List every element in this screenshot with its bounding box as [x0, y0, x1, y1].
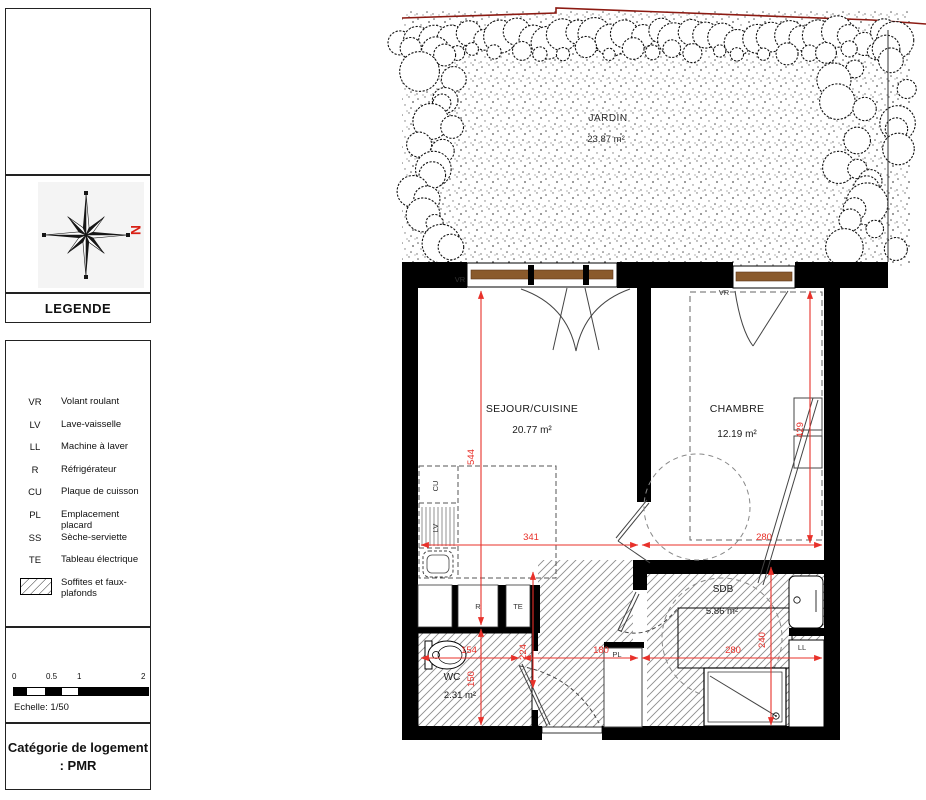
legend-abbr: SS: [18, 533, 52, 544]
legend-abbr: PL: [18, 510, 52, 521]
legend-label: Machine à laver: [61, 442, 128, 453]
legend-label: Plaque de cuisson: [61, 487, 139, 498]
wall-wc-door-stub-bottom: [532, 710, 538, 727]
chambre-label: CHAMBRE: [710, 403, 765, 415]
scale-tick-05: 0.5: [46, 672, 57, 681]
legend-row-lv: LVLave-vaisselle: [6, 420, 150, 443]
scale-caption: Echelle: 1/50: [14, 702, 69, 713]
wall-partition: [637, 284, 651, 502]
window-right-frame: [736, 272, 792, 281]
wc-label: WC: [444, 672, 461, 683]
legend-title-cell: LEGENDE: [5, 293, 151, 323]
scale-seg: [45, 688, 62, 695]
bedroom-door: [616, 500, 650, 563]
legend-row-vr: VRVolant roulant: [6, 397, 150, 420]
legend-abbr: VR: [18, 397, 52, 408]
pmr-circle-chambre: [644, 454, 750, 560]
placard-box: [604, 648, 642, 727]
scale-tick-0: 0: [12, 672, 16, 681]
wall-sdb-nook: [789, 628, 824, 636]
legend-items-cell: VRVolant roulantLVLave-vaisselleLLMachin…: [5, 340, 151, 627]
legend-title: LEGENDE: [45, 301, 111, 316]
category-cell: Catégorie de logement : PMR: [5, 723, 151, 790]
wall-sdb-top: [647, 560, 824, 574]
legend-row-hatch: Soffites et faux-plafonds: [6, 578, 150, 601]
dim-154: 154: [461, 645, 477, 656]
wall-stub-1: [452, 585, 458, 633]
tag-te: TE: [513, 602, 523, 611]
tag-pl: PL: [612, 650, 621, 659]
legend-row-ll: LLMachine à laver: [6, 442, 150, 465]
scale-seg: [62, 688, 78, 695]
wall-stub-3: [530, 585, 540, 633]
legend-label: Réfrigérateur: [61, 465, 116, 476]
dim-180: 180: [593, 645, 609, 656]
french-door-leaves: [553, 288, 599, 350]
garden-area: JARDIN 23.87 m²: [388, 8, 926, 266]
garden-label: JARDIN: [588, 113, 627, 124]
legend-abbr: TE: [18, 555, 52, 566]
tag-vr-left: VR: [455, 275, 466, 284]
category-line1: Catégorie de logement: [8, 739, 148, 757]
garden-area-label: 23.87 m²: [587, 134, 625, 145]
compass-north-letter: N: [128, 225, 144, 235]
wall-stub-2: [498, 585, 506, 633]
scale-tick-1: 1: [77, 672, 81, 681]
legend-abbr: CU: [18, 487, 52, 498]
floorplan-page: JARDIN 23.87 m²: [0, 0, 926, 800]
hatch-symbol: [20, 578, 52, 595]
wall-left: [402, 262, 418, 740]
legend-row-te: TETableau électrique: [6, 555, 150, 578]
scale-bar: [13, 687, 149, 696]
appliance-box: [418, 585, 452, 627]
wardrobe-2: [794, 436, 822, 468]
tag-vr-right: VR: [719, 288, 730, 297]
legend-abbr: R: [18, 465, 52, 476]
tag-lv: LV: [431, 524, 440, 533]
compass-rose: N: [36, 180, 146, 295]
tag-cu: CU: [431, 481, 440, 492]
wc-area: 2.31 m²: [444, 690, 476, 701]
shower-drain-dot: [775, 715, 777, 717]
legend-label: Lave-vaisselle: [61, 420, 121, 431]
legend-row-ss: SSSèche-serviette: [6, 533, 150, 556]
wall-bottom-right: [602, 726, 840, 740]
panel-compass-cell: N: [5, 175, 151, 293]
tag-ll: LL: [798, 643, 806, 652]
wall-bottom-left: [402, 726, 542, 740]
wall-top-mid: [617, 262, 733, 288]
legend-abbr: LL: [18, 442, 52, 453]
legend-label: Sèche-serviette: [61, 533, 127, 544]
sejour-area: 20.77 m²: [512, 425, 552, 436]
sdb-area: 5.86 m²: [706, 606, 738, 617]
chambre-area: 12.19 m²: [717, 429, 757, 440]
window-left-frame: [471, 270, 613, 279]
entrance-threshold: [542, 727, 602, 733]
legend-label: Soffites et faux-plafonds: [61, 578, 150, 600]
dim-280a: 280: [756, 532, 772, 543]
category-line2: : PMR: [60, 757, 97, 775]
legend-label: Emplacement placard: [61, 510, 150, 532]
french-door-swings: [521, 289, 630, 351]
scale-seg: [78, 688, 148, 695]
wall-placard-top: [604, 642, 644, 648]
legend-row-pl: PLEmplacement placard: [6, 510, 150, 533]
legend-row-cu: CUPlaque de cuisson: [6, 487, 150, 510]
window-left-mullion2: [583, 265, 589, 285]
scale-tick-2: 2: [141, 672, 145, 681]
legend-label: Volant roulant: [61, 397, 119, 408]
wall-hall-stub: [633, 560, 647, 590]
dim-150: 150: [466, 671, 477, 687]
panel-empty-cell: [5, 8, 151, 175]
window-left-mullion1: [528, 265, 534, 285]
wall-wc-top: [402, 627, 538, 633]
bedroom-window-door: [735, 291, 788, 346]
wall-top-right: [795, 262, 888, 288]
legend-abbr: LV: [18, 420, 52, 431]
dim-341: 341: [523, 532, 539, 543]
tag-r: R: [475, 602, 481, 611]
dim-544: 544: [466, 449, 477, 465]
dim-240: 240: [757, 632, 768, 648]
scale-seg: [14, 688, 27, 695]
legend-label: Tableau électrique: [61, 555, 138, 566]
scale-seg: [27, 688, 45, 695]
sdb-label: SDB: [713, 584, 734, 595]
legend-row-r: RRéfrigérateur: [6, 465, 150, 488]
dim-224: 224: [518, 644, 529, 660]
wall-right: [824, 262, 840, 740]
washing-machine-nook: [789, 640, 824, 727]
sejour-label: SEJOUR/CUISINE: [486, 403, 578, 415]
dim-429: 429: [795, 422, 806, 438]
scale-cell: 0 0.5 1 2 Echelle: 1/50: [5, 627, 151, 723]
dim-280b: 280: [725, 645, 741, 656]
